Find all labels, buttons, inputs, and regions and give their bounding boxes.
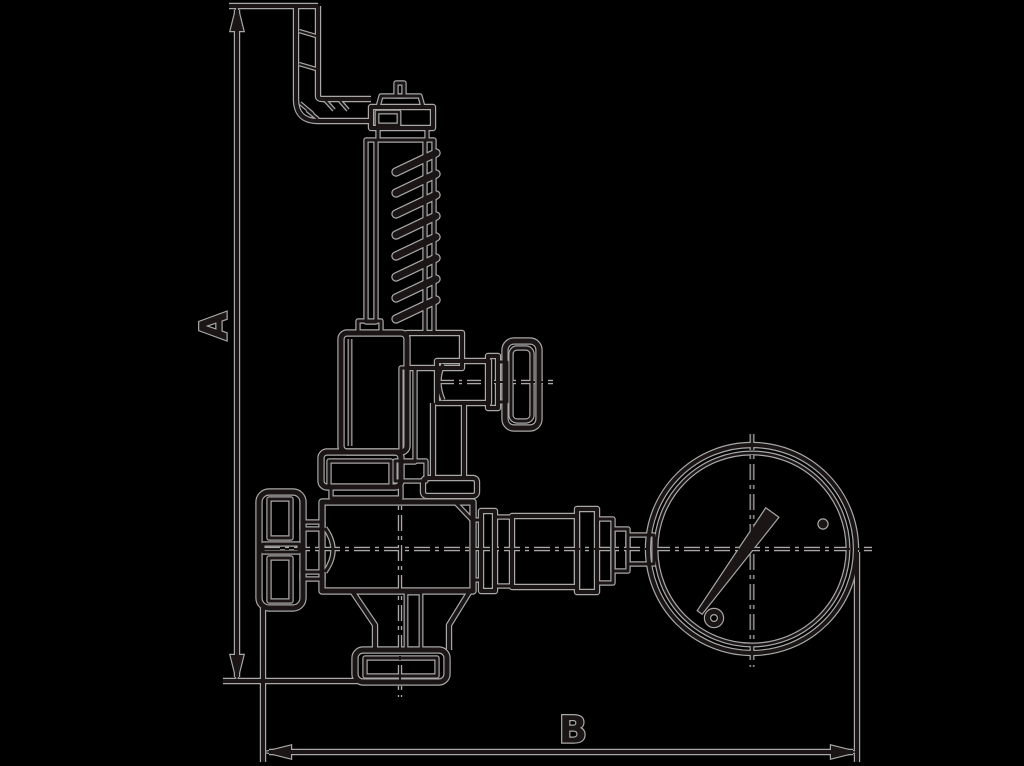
gauge-needle xyxy=(698,509,778,614)
lever-outer-edge xyxy=(296,6,371,121)
spring-coils xyxy=(396,153,436,319)
dim-a-arrow-down xyxy=(231,655,244,681)
valve-body xyxy=(302,502,473,591)
gauge-screw-dot xyxy=(819,520,828,529)
spring-bonnet xyxy=(341,140,436,452)
upper-outlet xyxy=(401,333,539,496)
bottom-outlet xyxy=(352,591,470,682)
flange-inner xyxy=(329,461,391,487)
dim-a-label: A xyxy=(193,311,236,340)
valve-technical-drawing: A B xyxy=(0,0,1024,766)
body-outline xyxy=(322,502,473,591)
dim-b-arrow-left xyxy=(265,746,291,759)
downpipe xyxy=(433,403,464,480)
dim-b-arrow-right xyxy=(831,746,857,759)
gauge-piping xyxy=(473,509,654,592)
dimension-a: A xyxy=(193,5,361,681)
union-nut xyxy=(512,516,577,587)
dim-b-label: B xyxy=(559,709,587,752)
lever-inner-edge xyxy=(318,6,371,99)
outlet-neck xyxy=(352,591,470,650)
gauge-stop-pin xyxy=(708,612,721,625)
drawing-canvas: A B xyxy=(0,0,1024,766)
lifting-lever xyxy=(296,6,371,121)
outlet-plug-inner xyxy=(511,348,532,421)
knob-inner-upper xyxy=(269,499,291,538)
knob-inner-lower xyxy=(269,558,291,601)
yoke-left-rail xyxy=(366,140,376,322)
